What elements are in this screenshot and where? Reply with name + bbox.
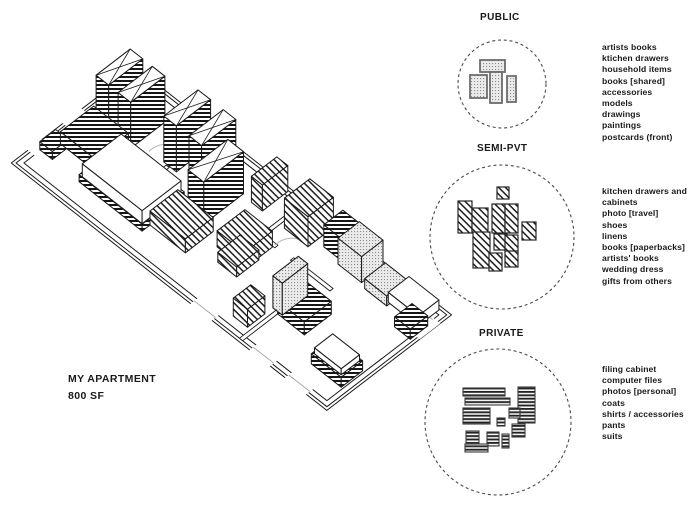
apartment-title: MY APARTMENT (68, 371, 156, 388)
list-item: pants (602, 420, 684, 431)
list-item: drawings (602, 109, 672, 120)
list-item: wedding dress (602, 264, 687, 275)
list-item: shoes (602, 220, 687, 231)
list-item: photos [personal] (602, 386, 684, 397)
private-circle (425, 349, 571, 495)
private-title: PRIVATE (479, 328, 524, 339)
public-item-list: artists books ktichen drawers household … (602, 42, 672, 143)
list-item: books [paperbacks] (602, 242, 687, 253)
diagram-canvas (0, 0, 700, 506)
list-item: accessories (602, 87, 672, 98)
list-item: computer files (602, 375, 684, 386)
list-item: postcards (front) (602, 132, 672, 143)
list-item: ktichen drawers (602, 53, 672, 64)
list-item: photo [travel] (602, 208, 687, 219)
list-item: artists books (602, 42, 672, 53)
list-item: artists' books (602, 253, 687, 264)
list-item: cabinets (602, 197, 687, 208)
list-item: household items (602, 64, 672, 75)
list-item: paintings (602, 120, 672, 131)
list-item: suits (602, 431, 684, 442)
list-item: books [shared] (602, 76, 672, 87)
public-circle (458, 40, 546, 128)
private-item-list: filing cabinet computer files photos [pe… (602, 364, 684, 442)
apartment-caption: MY APARTMENT 800 SF (68, 371, 156, 405)
apartment-plan (11, 49, 451, 410)
public-title: PUBLIC (480, 12, 520, 23)
list-item: coats (602, 398, 684, 409)
list-item: filing cabinet (602, 364, 684, 375)
list-item: shirts / accessories (602, 409, 684, 420)
apartment-area: 800 SF (68, 388, 156, 405)
list-item: linens (602, 231, 687, 242)
list-item: gifts from others (602, 276, 687, 287)
storage-privacy-diagram: MY APARTMENT 800 SF PUBLIC SEMI-PVT PRIV… (0, 0, 700, 506)
semi-pvt-title: SEMI-PVT (477, 143, 527, 154)
list-item: models (602, 98, 672, 109)
semi-pvt-circle (430, 165, 574, 309)
privacy-circles (425, 40, 574, 495)
list-item: kitchen drawers and (602, 186, 687, 197)
semi-pvt-item-list: kitchen drawers and cabinets photo [trav… (602, 186, 687, 287)
